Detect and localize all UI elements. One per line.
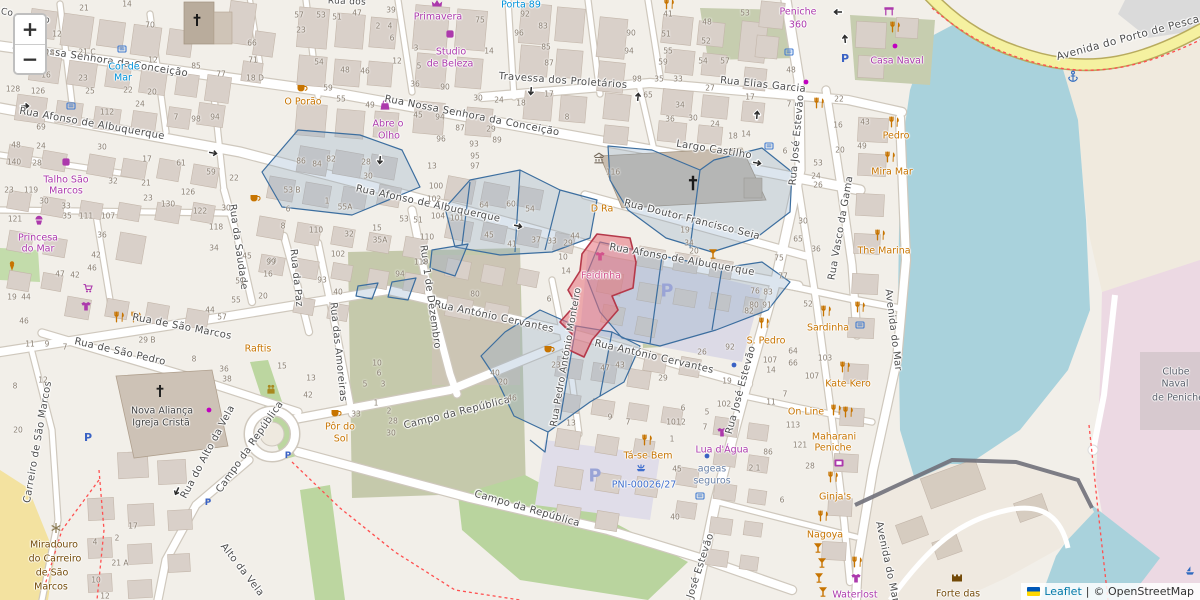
ukraine-flag-icon (1027, 587, 1040, 596)
blob-icon (446, 30, 453, 37)
dot-icon (207, 408, 212, 413)
attribution-separator: | (1086, 585, 1090, 598)
p-icon (841, 52, 849, 65)
castle-icon (952, 575, 962, 582)
p-icon (84, 431, 92, 444)
osm-link[interactable]: © OpenStreetMap (1093, 585, 1194, 598)
map-canvas[interactable]: P (0, 0, 1200, 600)
dot-icon (705, 454, 710, 459)
p-icon (205, 498, 212, 508)
blob-icon (62, 158, 69, 165)
zoom-in-button[interactable]: + (15, 15, 45, 44)
p-icon (285, 451, 292, 461)
leaflet-link[interactable]: Leaflet (1044, 585, 1081, 598)
dot-icon (893, 44, 898, 49)
p-icon (661, 281, 674, 301)
zoom-out-button[interactable]: − (15, 44, 45, 73)
naval-club-building (1140, 352, 1200, 430)
zoom-control: + − (13, 13, 47, 75)
map-tiles: P (0, 0, 1200, 600)
dot-icon (732, 363, 737, 368)
dot-icon (804, 80, 809, 85)
attribution-bar: Leaflet | © OpenStreetMap (1021, 583, 1200, 600)
p-icon (589, 466, 602, 486)
film-icon (835, 460, 844, 467)
